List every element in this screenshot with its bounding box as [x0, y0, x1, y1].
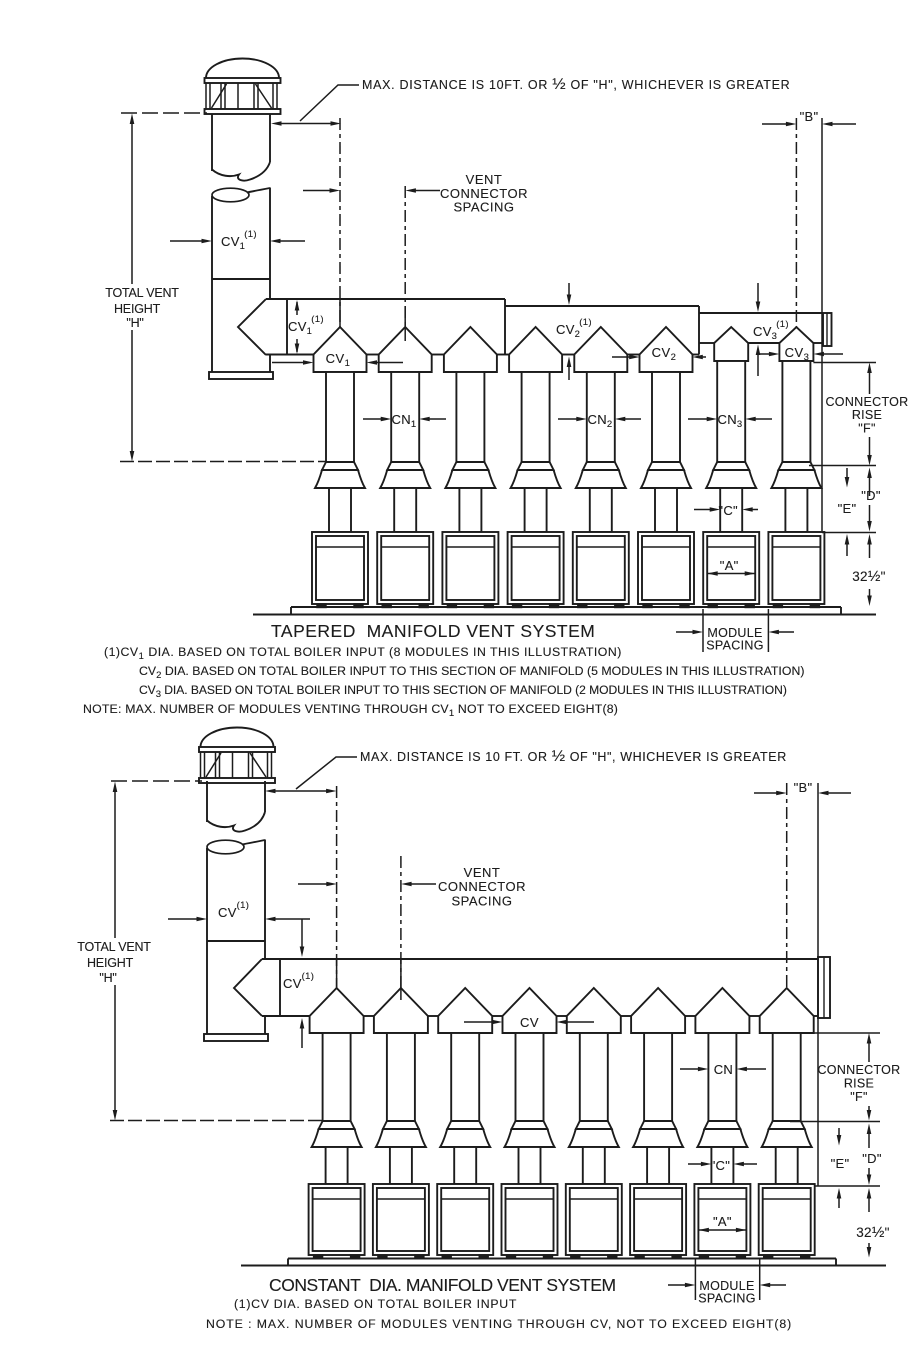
- svg-text:"E": "E": [831, 1156, 850, 1171]
- svg-text:TOTAL VENT: TOTAL VENT: [105, 286, 179, 300]
- svg-text:"C": "C": [718, 503, 738, 518]
- svg-text:SPACING: SPACING: [451, 894, 512, 909]
- svg-text:VENT: VENT: [464, 865, 501, 880]
- svg-text:CV: CV: [520, 1015, 539, 1030]
- svg-text:RISE: RISE: [844, 1077, 874, 1091]
- svg-text:"D": "D": [862, 1151, 882, 1166]
- svg-text:HEIGHT: HEIGHT: [114, 302, 161, 316]
- svg-text:"F": "F": [850, 1090, 867, 1104]
- svg-text:CONNECTOR: CONNECTOR: [825, 395, 908, 409]
- svg-text:SPACING: SPACING: [698, 1292, 755, 1306]
- svg-text:"H": "H": [99, 971, 116, 985]
- svg-text:CN: CN: [714, 1062, 733, 1077]
- svg-text:HEIGHT: HEIGHT: [87, 956, 134, 970]
- svg-text:TOTAL VENT: TOTAL VENT: [77, 940, 151, 954]
- svg-text:NOTE : MAX. NUMBER OF MODUL: NOTE : MAX. NUMBER OF MODULES VENTING TH…: [206, 1317, 792, 1331]
- svg-text:CONSTANT DIA. MANIFOLD VENT S: CONSTANT DIA. MANIFOLD VENT SYSTEM: [269, 1275, 616, 1295]
- svg-text:MAX. DISTANCE IS 10FT. OR ½ OF: MAX. DISTANCE IS 10FT. OR ½ OF "H", WHIC…: [362, 76, 790, 93]
- svg-text:SPACING: SPACING: [706, 639, 763, 653]
- svg-text:SPACING: SPACING: [453, 200, 514, 215]
- svg-text:32½": 32½": [856, 1224, 890, 1241]
- svg-text:"C": "C": [711, 1158, 731, 1173]
- svg-text:"F": "F": [858, 422, 875, 436]
- svg-text:VENT: VENT: [466, 172, 503, 187]
- svg-text:RISE: RISE: [852, 408, 882, 422]
- svg-text:"A": "A": [720, 558, 739, 573]
- svg-text:CONNECTOR: CONNECTOR: [817, 1063, 900, 1077]
- svg-text:TAPERED MANIFOLD VENT SYSTEM: TAPERED MANIFOLD VENT SYSTEM: [271, 621, 595, 641]
- svg-text:"D": "D": [861, 488, 881, 503]
- svg-text:32½": 32½": [852, 568, 886, 585]
- svg-text:"B": "B": [794, 780, 813, 795]
- svg-text:"H": "H": [126, 316, 143, 330]
- svg-text:"E": "E": [838, 501, 857, 516]
- svg-text:"A": "A": [713, 1214, 732, 1229]
- svg-text:(1)CV DIA. BASED ON TOTAL B: (1)CV DIA. BASED ON TOTAL BOILER INPUT: [234, 1297, 517, 1311]
- svg-text:"B": "B": [800, 109, 819, 124]
- svg-text:MAX. DISTANCE IS 10 FT. OR ½: MAX. DISTANCE IS 10 FT. OR ½ OF "H", WHI…: [360, 748, 787, 765]
- svg-text:CONNECTOR: CONNECTOR: [438, 879, 526, 894]
